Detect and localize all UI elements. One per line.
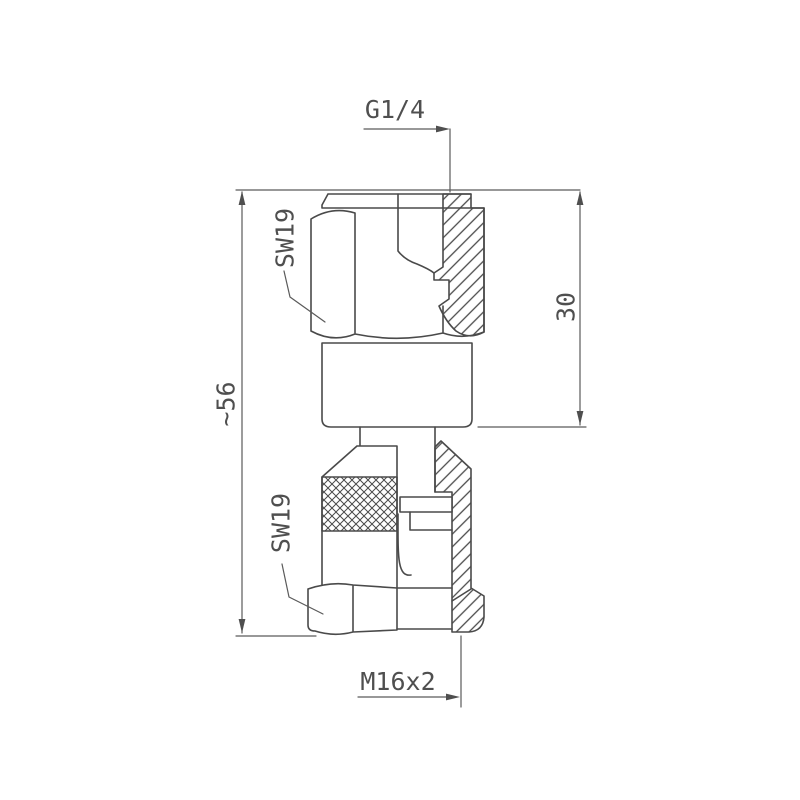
label-upper-section-length: 30	[552, 292, 581, 322]
drawing-canvas: G1/4 SW19 SW19 ~56 30 M16x2	[0, 0, 800, 800]
part-lower-coupler	[308, 427, 484, 634]
upper-cylinder	[322, 343, 472, 427]
seal-washer	[400, 497, 452, 512]
upper-bore-edge	[398, 194, 434, 273]
part-upper-coupler	[311, 194, 484, 427]
arrow-up-left	[239, 191, 246, 205]
technical-drawing: G1/4 SW19 SW19 ~56 30 M16x2	[0, 0, 800, 800]
lower-section-hatch	[435, 441, 484, 632]
label-wrench-size-bottom: SW19	[267, 493, 296, 553]
lower-hex-body	[308, 584, 452, 635]
leader-wrench-top	[284, 271, 325, 322]
upper-section-hatch	[434, 194, 484, 336]
arrow-down-right	[577, 411, 584, 425]
knurled-sleeve	[322, 477, 397, 531]
leader-wrench-bottom	[282, 564, 323, 614]
label-top-thread: G1/4	[365, 95, 425, 124]
label-overall-length: ~56	[212, 381, 241, 426]
label-wrench-size-top: SW19	[271, 208, 300, 268]
arrow-up-right	[577, 191, 584, 205]
arrow-down-left	[239, 619, 246, 633]
arrow-right-bottom-thread	[446, 694, 460, 701]
arrow-right-top-thread	[436, 126, 450, 133]
label-bottom-thread: M16x2	[360, 667, 435, 696]
leader-top-thread	[364, 129, 450, 192]
